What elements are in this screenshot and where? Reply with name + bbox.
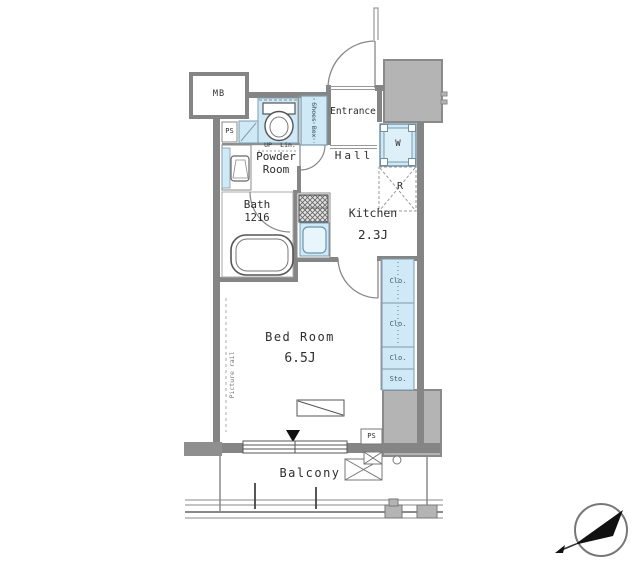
closet3-label: Clo. (384, 354, 412, 363)
sliding-window (243, 441, 347, 453)
bedroom-door-arc (338, 258, 378, 298)
picture-rail-label: Picture rail (228, 352, 236, 399)
hall-label: Hall (328, 149, 380, 162)
corner-sink (239, 121, 258, 143)
stove (299, 195, 328, 222)
refrigerator-label: R (392, 181, 408, 193)
corridor-frame-lines (374, 8, 378, 40)
floor-plan-drawing (0, 0, 640, 569)
pipe-space-top-label: PS (221, 127, 238, 136)
railing-blocks (385, 499, 437, 518)
desk (297, 400, 344, 416)
shoes-box-label: Shoes Box (310, 102, 318, 137)
floor-plan: MB PS UP Lin. Powder Room Shoes Box Entr… (0, 0, 640, 569)
bedroom-label: Bed Room (250, 330, 350, 345)
meter-box-label: MB (197, 89, 241, 99)
window-marker-icon (286, 430, 300, 442)
step-up-label: UP (258, 142, 278, 150)
storage-label: Sto. (384, 375, 412, 384)
pipe-space-bottom-label: PS (362, 432, 381, 441)
entrance-door-arc (328, 41, 375, 88)
kitchen-size-label: 2.3J (344, 227, 402, 242)
balcony-railing (185, 455, 443, 518)
balcony-label: Balcony (270, 466, 350, 481)
kitchen-counter (297, 193, 330, 258)
entrance-label: Entrance (322, 106, 384, 118)
balcony-drain (393, 456, 401, 464)
compass-icon (555, 504, 627, 556)
closet2-label: Clo. (384, 320, 412, 329)
bath-size-label: 1216 (231, 212, 283, 225)
bath-label: Bath (231, 198, 283, 211)
washer-label: W (390, 139, 406, 150)
linen-label: Lin. (276, 142, 300, 150)
closet1-label: Clo. (384, 277, 412, 286)
kitchen-label: Kitchen (336, 206, 410, 220)
evacuation-hatch (345, 452, 382, 480)
gray-mass-top-right (384, 60, 447, 122)
bedroom-size-label: 6.5J (262, 351, 338, 367)
toilet (258, 98, 298, 143)
powder-room-label: Powder Room (243, 150, 309, 177)
